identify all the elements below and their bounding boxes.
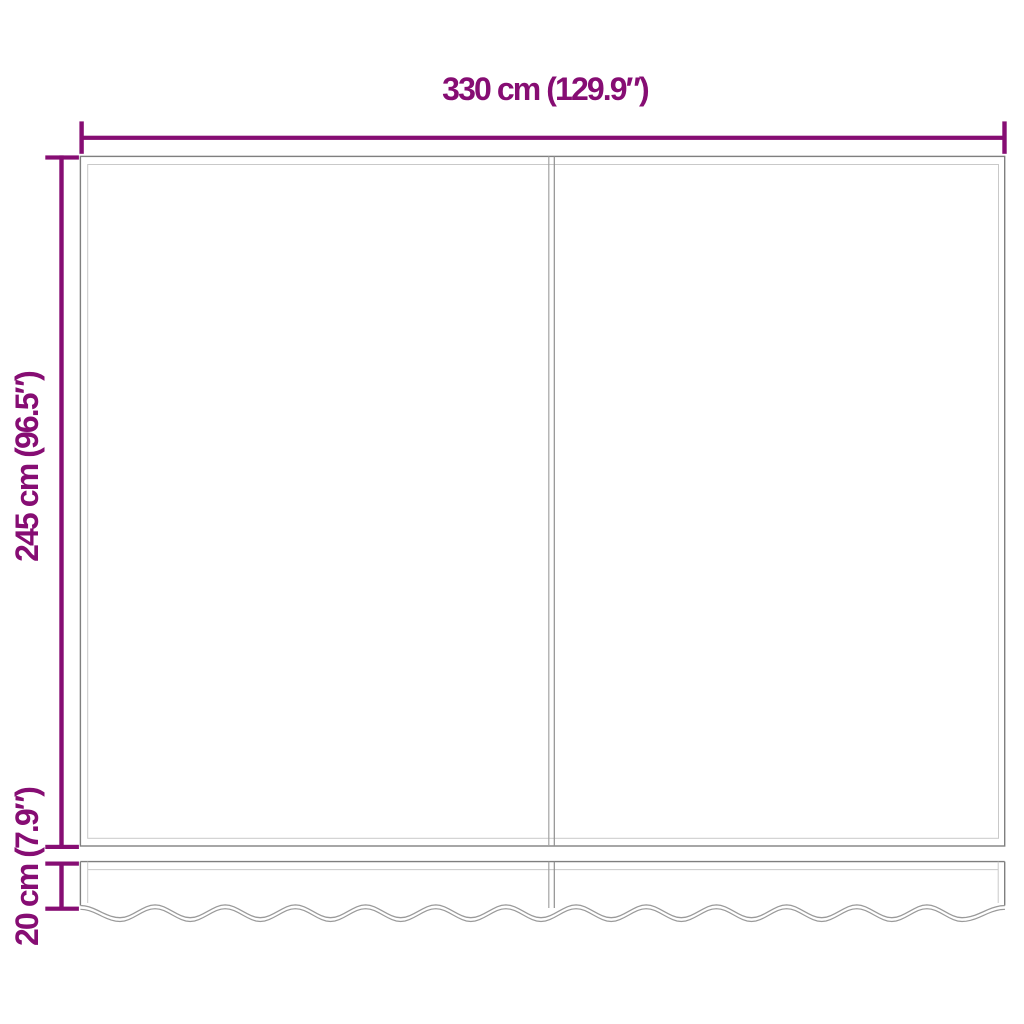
svg-text:20 cm (7.9″): 20 cm (7.9″) [9,787,45,946]
svg-text:330 cm (129.9″): 330 cm (129.9″) [442,71,649,107]
svg-text:245 cm (96.5″): 245 cm (96.5″) [9,371,45,562]
